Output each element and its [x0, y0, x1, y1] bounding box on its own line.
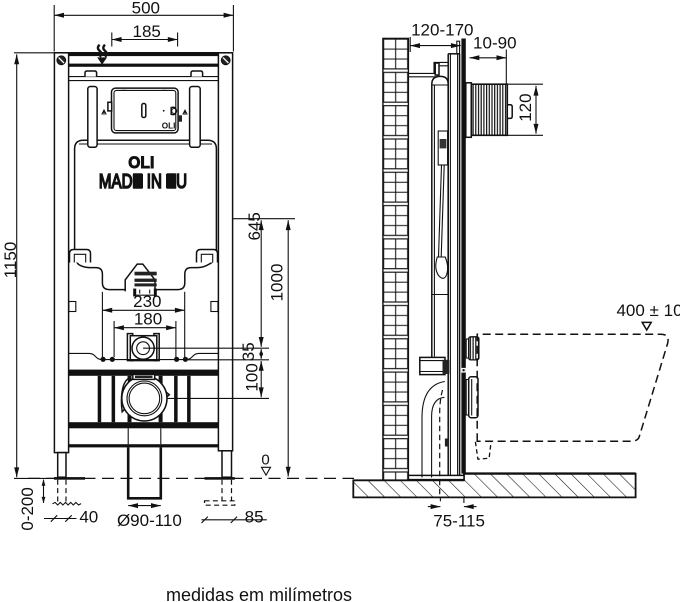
svg-text:230: 230 — [133, 292, 161, 311]
svg-text:OLI: OLI — [162, 121, 176, 130]
svg-text:400 ± 10: 400 ± 10 — [616, 301, 680, 320]
svg-text:0: 0 — [261, 451, 269, 468]
svg-text:185: 185 — [133, 22, 161, 41]
svg-text:500: 500 — [132, 0, 160, 17]
svg-text:medidas em milímetros: medidas em milímetros — [166, 585, 352, 602]
svg-text:645: 645 — [245, 212, 264, 240]
svg-text:40: 40 — [79, 507, 98, 526]
svg-text:85: 85 — [245, 507, 264, 526]
svg-text:1000: 1000 — [268, 264, 287, 302]
svg-text:1150: 1150 — [1, 242, 20, 279]
svg-text:10-90: 10-90 — [473, 34, 516, 53]
svg-text:35: 35 — [239, 342, 258, 361]
svg-text:Ø90-110: Ø90-110 — [117, 511, 182, 530]
svg-text:OLI: OLI — [128, 154, 154, 172]
svg-text:75-115: 75-115 — [433, 512, 485, 531]
svg-text:120-170: 120-170 — [411, 20, 473, 39]
svg-text:100: 100 — [243, 363, 262, 391]
svg-text:0-200: 0-200 — [18, 487, 37, 530]
svg-text:180: 180 — [134, 310, 162, 329]
svg-text:120: 120 — [516, 93, 535, 121]
